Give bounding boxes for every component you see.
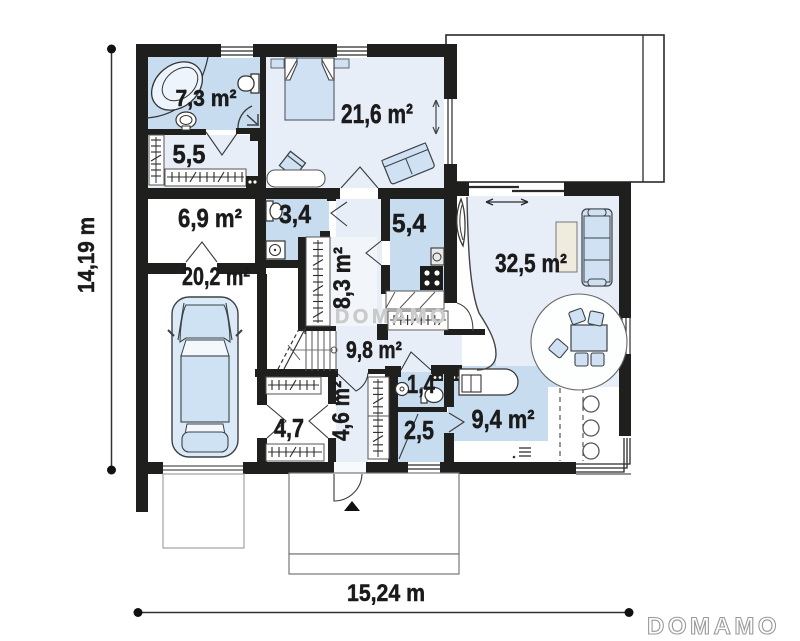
svg-text:32,5 m²: 32,5 m² xyxy=(495,248,567,278)
svg-text:8,3 m²: 8,3 m² xyxy=(329,247,356,309)
svg-text:DOMAMO: DOMAMO xyxy=(335,306,449,328)
svg-text:21,6 m²: 21,6 m² xyxy=(341,99,413,129)
svg-text:2,5: 2,5 xyxy=(404,415,434,445)
svg-text:9,4 m²: 9,4 m² xyxy=(472,404,535,434)
svg-text:14,19 m: 14,19 m xyxy=(73,217,99,293)
svg-text:5,4: 5,4 xyxy=(392,208,426,238)
svg-text:6,9 m²: 6,9 m² xyxy=(178,203,242,233)
svg-text:15,24 m: 15,24 m xyxy=(347,580,425,607)
svg-text:5,5: 5,5 xyxy=(173,139,206,169)
svg-text:DOMAMO: DOMAMO xyxy=(647,613,780,640)
svg-text:20,2 m²: 20,2 m² xyxy=(182,263,250,291)
svg-text:4,6 m²: 4,6 m² xyxy=(328,381,355,441)
svg-text:4,7: 4,7 xyxy=(274,413,304,443)
svg-text:3,4: 3,4 xyxy=(279,199,311,229)
svg-text:7,3 m²: 7,3 m² xyxy=(176,85,237,111)
svg-text:9,8 m²: 9,8 m² xyxy=(346,337,402,364)
svg-text:1,4: 1,4 xyxy=(407,369,435,399)
